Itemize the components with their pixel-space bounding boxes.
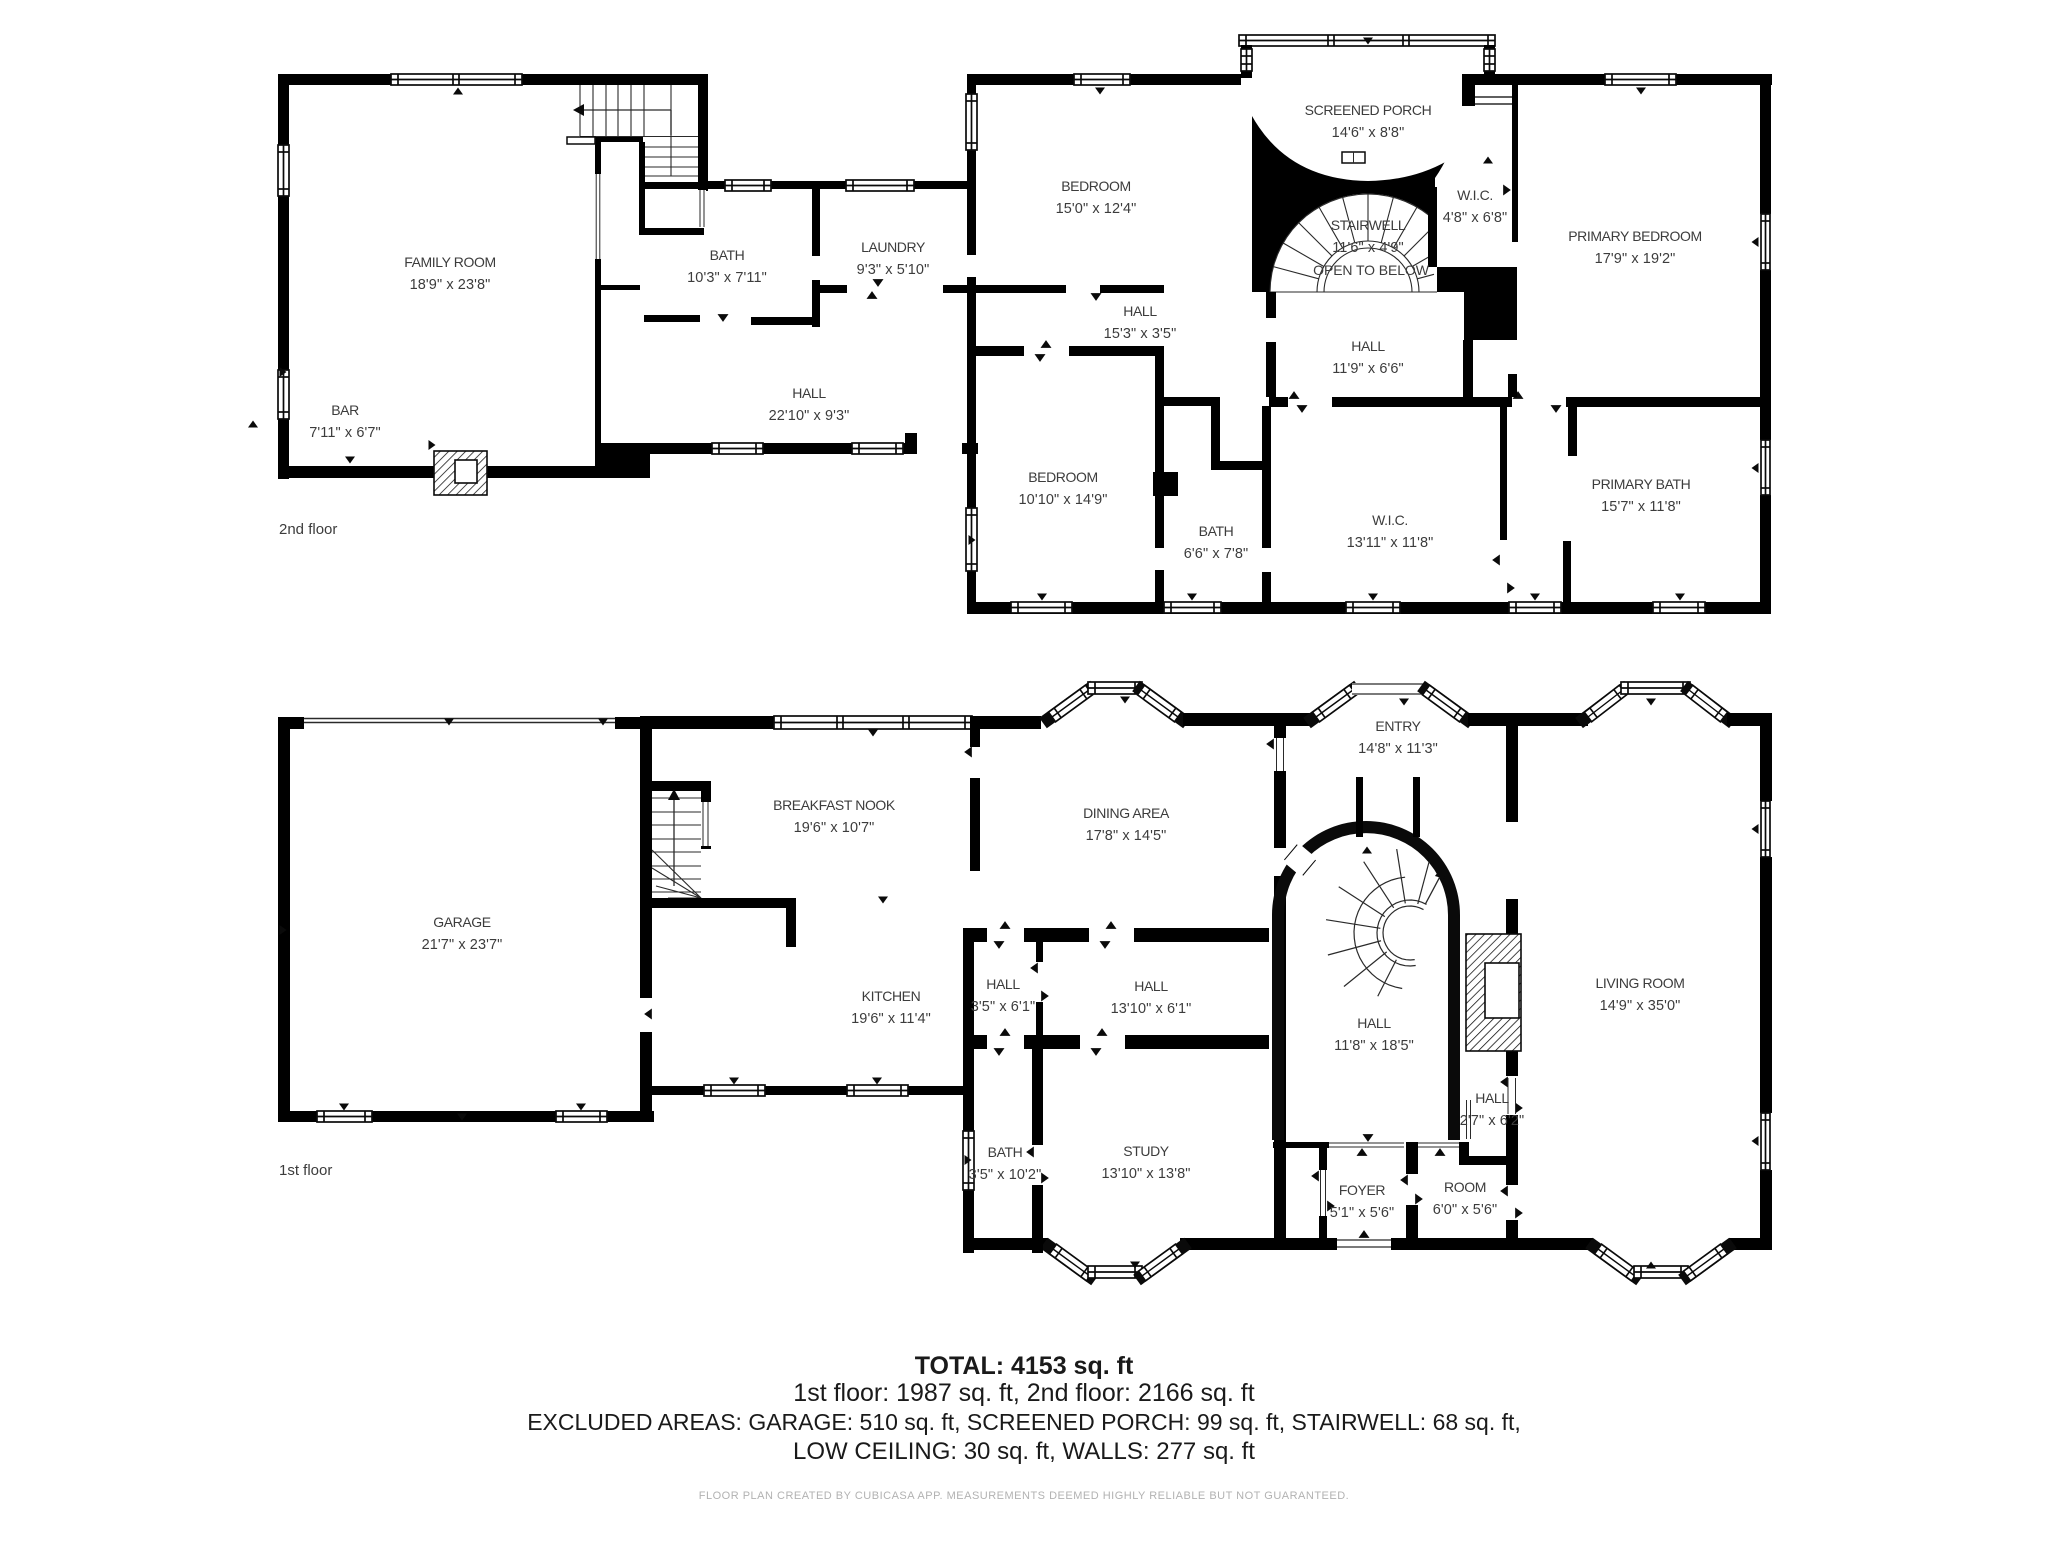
svg-text:HALL: HALL xyxy=(1351,338,1385,354)
svg-text:14'8" x 11'3": 14'8" x 11'3" xyxy=(1358,741,1438,757)
svg-text:15'7" x 11'8": 15'7" x 11'8" xyxy=(1601,499,1681,515)
svg-text:13'10" x 13'8": 13'10" x 13'8" xyxy=(1102,1166,1191,1182)
svg-text:21'7" x 23'7": 21'7" x 23'7" xyxy=(422,937,503,953)
svg-text:BEDROOM: BEDROOM xyxy=(1028,469,1098,485)
svg-text:11'8" x 18'5": 11'8" x 18'5" xyxy=(1334,1038,1414,1054)
svg-text:HALL: HALL xyxy=(1123,303,1157,319)
svg-text:11'6" x 4'9": 11'6" x 4'9" xyxy=(1332,240,1404,256)
svg-text:HALL: HALL xyxy=(1475,1090,1509,1106)
svg-text:15'0" x 12'4": 15'0" x 12'4" xyxy=(1056,201,1137,217)
svg-text:2nd floor: 2nd floor xyxy=(279,521,337,538)
svg-text:6'0" x 5'6": 6'0" x 5'6" xyxy=(1433,1202,1498,1218)
svg-text:FOYER: FOYER xyxy=(1339,1182,1386,1198)
svg-text:STAIRWELL: STAIRWELL xyxy=(1331,217,1406,233)
svg-text:19'6" x 10'7": 19'6" x 10'7" xyxy=(794,820,875,836)
svg-text:13'11" x 11'8": 13'11" x 11'8" xyxy=(1347,535,1434,551)
svg-text:2'7" x 6'2": 2'7" x 6'2" xyxy=(1460,1113,1525,1129)
svg-text:HALL: HALL xyxy=(792,385,826,401)
svg-text:OPEN TO BELOW: OPEN TO BELOW xyxy=(1313,262,1430,278)
svg-text:7'11" x 6'7": 7'11" x 6'7" xyxy=(309,425,381,441)
svg-text:W.I.C.: W.I.C. xyxy=(1457,187,1493,203)
svg-text:ROOM: ROOM xyxy=(1444,1179,1486,1195)
svg-text:BREAKFAST NOOK: BREAKFAST NOOK xyxy=(773,797,896,813)
svg-text:SCREENED PORCH: SCREENED PORCH xyxy=(1305,102,1432,118)
svg-text:STUDY: STUDY xyxy=(1123,1143,1170,1159)
svg-text:1st floor: 1st floor xyxy=(279,1162,332,1179)
svg-text:PRIMARY BATH: PRIMARY BATH xyxy=(1592,476,1691,492)
svg-text:HALL: HALL xyxy=(1357,1015,1391,1031)
svg-text:LIVING ROOM: LIVING ROOM xyxy=(1596,975,1685,991)
svg-text:KITCHEN: KITCHEN xyxy=(862,988,921,1004)
svg-text:11'9" x 6'6": 11'9" x 6'6" xyxy=(1332,361,1404,377)
svg-text:PRIMARY BEDROOM: PRIMARY BEDROOM xyxy=(1568,228,1702,244)
svg-text:17'8" x 14'5": 17'8" x 14'5" xyxy=(1086,828,1167,844)
svg-text:TOTAL: 4153 sq. ft: TOTAL: 4153 sq. ft xyxy=(915,1352,1134,1380)
svg-text:15'3" x 3'5": 15'3" x 3'5" xyxy=(1104,326,1177,342)
svg-text:13'10" x 6'1": 13'10" x 6'1" xyxy=(1111,1001,1192,1017)
svg-text:14'9" x 35'0": 14'9" x 35'0" xyxy=(1600,998,1681,1014)
svg-text:BAR: BAR xyxy=(331,402,359,418)
svg-text:17'9" x 19'2": 17'9" x 19'2" xyxy=(1595,251,1676,267)
svg-text:FLOOR PLAN CREATED BY CUBICASA: FLOOR PLAN CREATED BY CUBICASA APP. MEAS… xyxy=(699,1490,1349,1502)
svg-text:10'3" x 7'11": 10'3" x 7'11" xyxy=(687,270,767,286)
svg-text:BATH: BATH xyxy=(710,247,745,263)
svg-text:ENTRY: ENTRY xyxy=(1375,718,1421,734)
svg-text:FAMILY ROOM: FAMILY ROOM xyxy=(404,254,496,270)
svg-text:22'10" x 9'3": 22'10" x 9'3" xyxy=(769,408,850,424)
svg-text:BATH: BATH xyxy=(988,1144,1023,1160)
svg-text:4'8" x 6'8": 4'8" x 6'8" xyxy=(1443,210,1508,226)
svg-text:W.I.C.: W.I.C. xyxy=(1372,512,1408,528)
svg-text:LAUNDRY: LAUNDRY xyxy=(861,239,926,255)
svg-text:EXCLUDED AREAS: GARAGE: 510 sq: EXCLUDED AREAS: GARAGE: 510 sq. ft, SCRE… xyxy=(527,1409,1521,1435)
svg-text:LOW CEILING: 30 sq. ft, WALLS:: LOW CEILING: 30 sq. ft, WALLS: 277 sq. f… xyxy=(793,1438,1255,1465)
svg-text:10'10" x 14'9": 10'10" x 14'9" xyxy=(1019,492,1108,508)
svg-text:14'6" x 8'8": 14'6" x 8'8" xyxy=(1332,125,1405,141)
svg-text:HALL: HALL xyxy=(986,976,1020,992)
svg-text:1st floor: 1987 sq. ft, 2nd fl: 1st floor: 1987 sq. ft, 2nd floor: 2166 … xyxy=(793,1379,1254,1407)
svg-text:18'9" x 23'8": 18'9" x 23'8" xyxy=(410,277,491,293)
svg-text:3'5" x 10'2": 3'5" x 10'2" xyxy=(969,1167,1042,1183)
svg-text:9'3" x 5'10": 9'3" x 5'10" xyxy=(857,262,930,278)
svg-text:HALL: HALL xyxy=(1134,978,1168,994)
svg-text:19'6" x 11'4": 19'6" x 11'4" xyxy=(851,1011,931,1027)
svg-text:BATH: BATH xyxy=(1199,523,1234,539)
svg-text:6'6" x 7'8": 6'6" x 7'8" xyxy=(1184,546,1249,562)
svg-text:DINING AREA: DINING AREA xyxy=(1083,805,1170,821)
svg-text:5'1" x 5'6": 5'1" x 5'6" xyxy=(1330,1205,1395,1221)
svg-text:BEDROOM: BEDROOM xyxy=(1061,178,1131,194)
svg-text:3'5" x 6'1": 3'5" x 6'1" xyxy=(971,999,1036,1015)
svg-text:GARAGE: GARAGE xyxy=(433,914,491,930)
